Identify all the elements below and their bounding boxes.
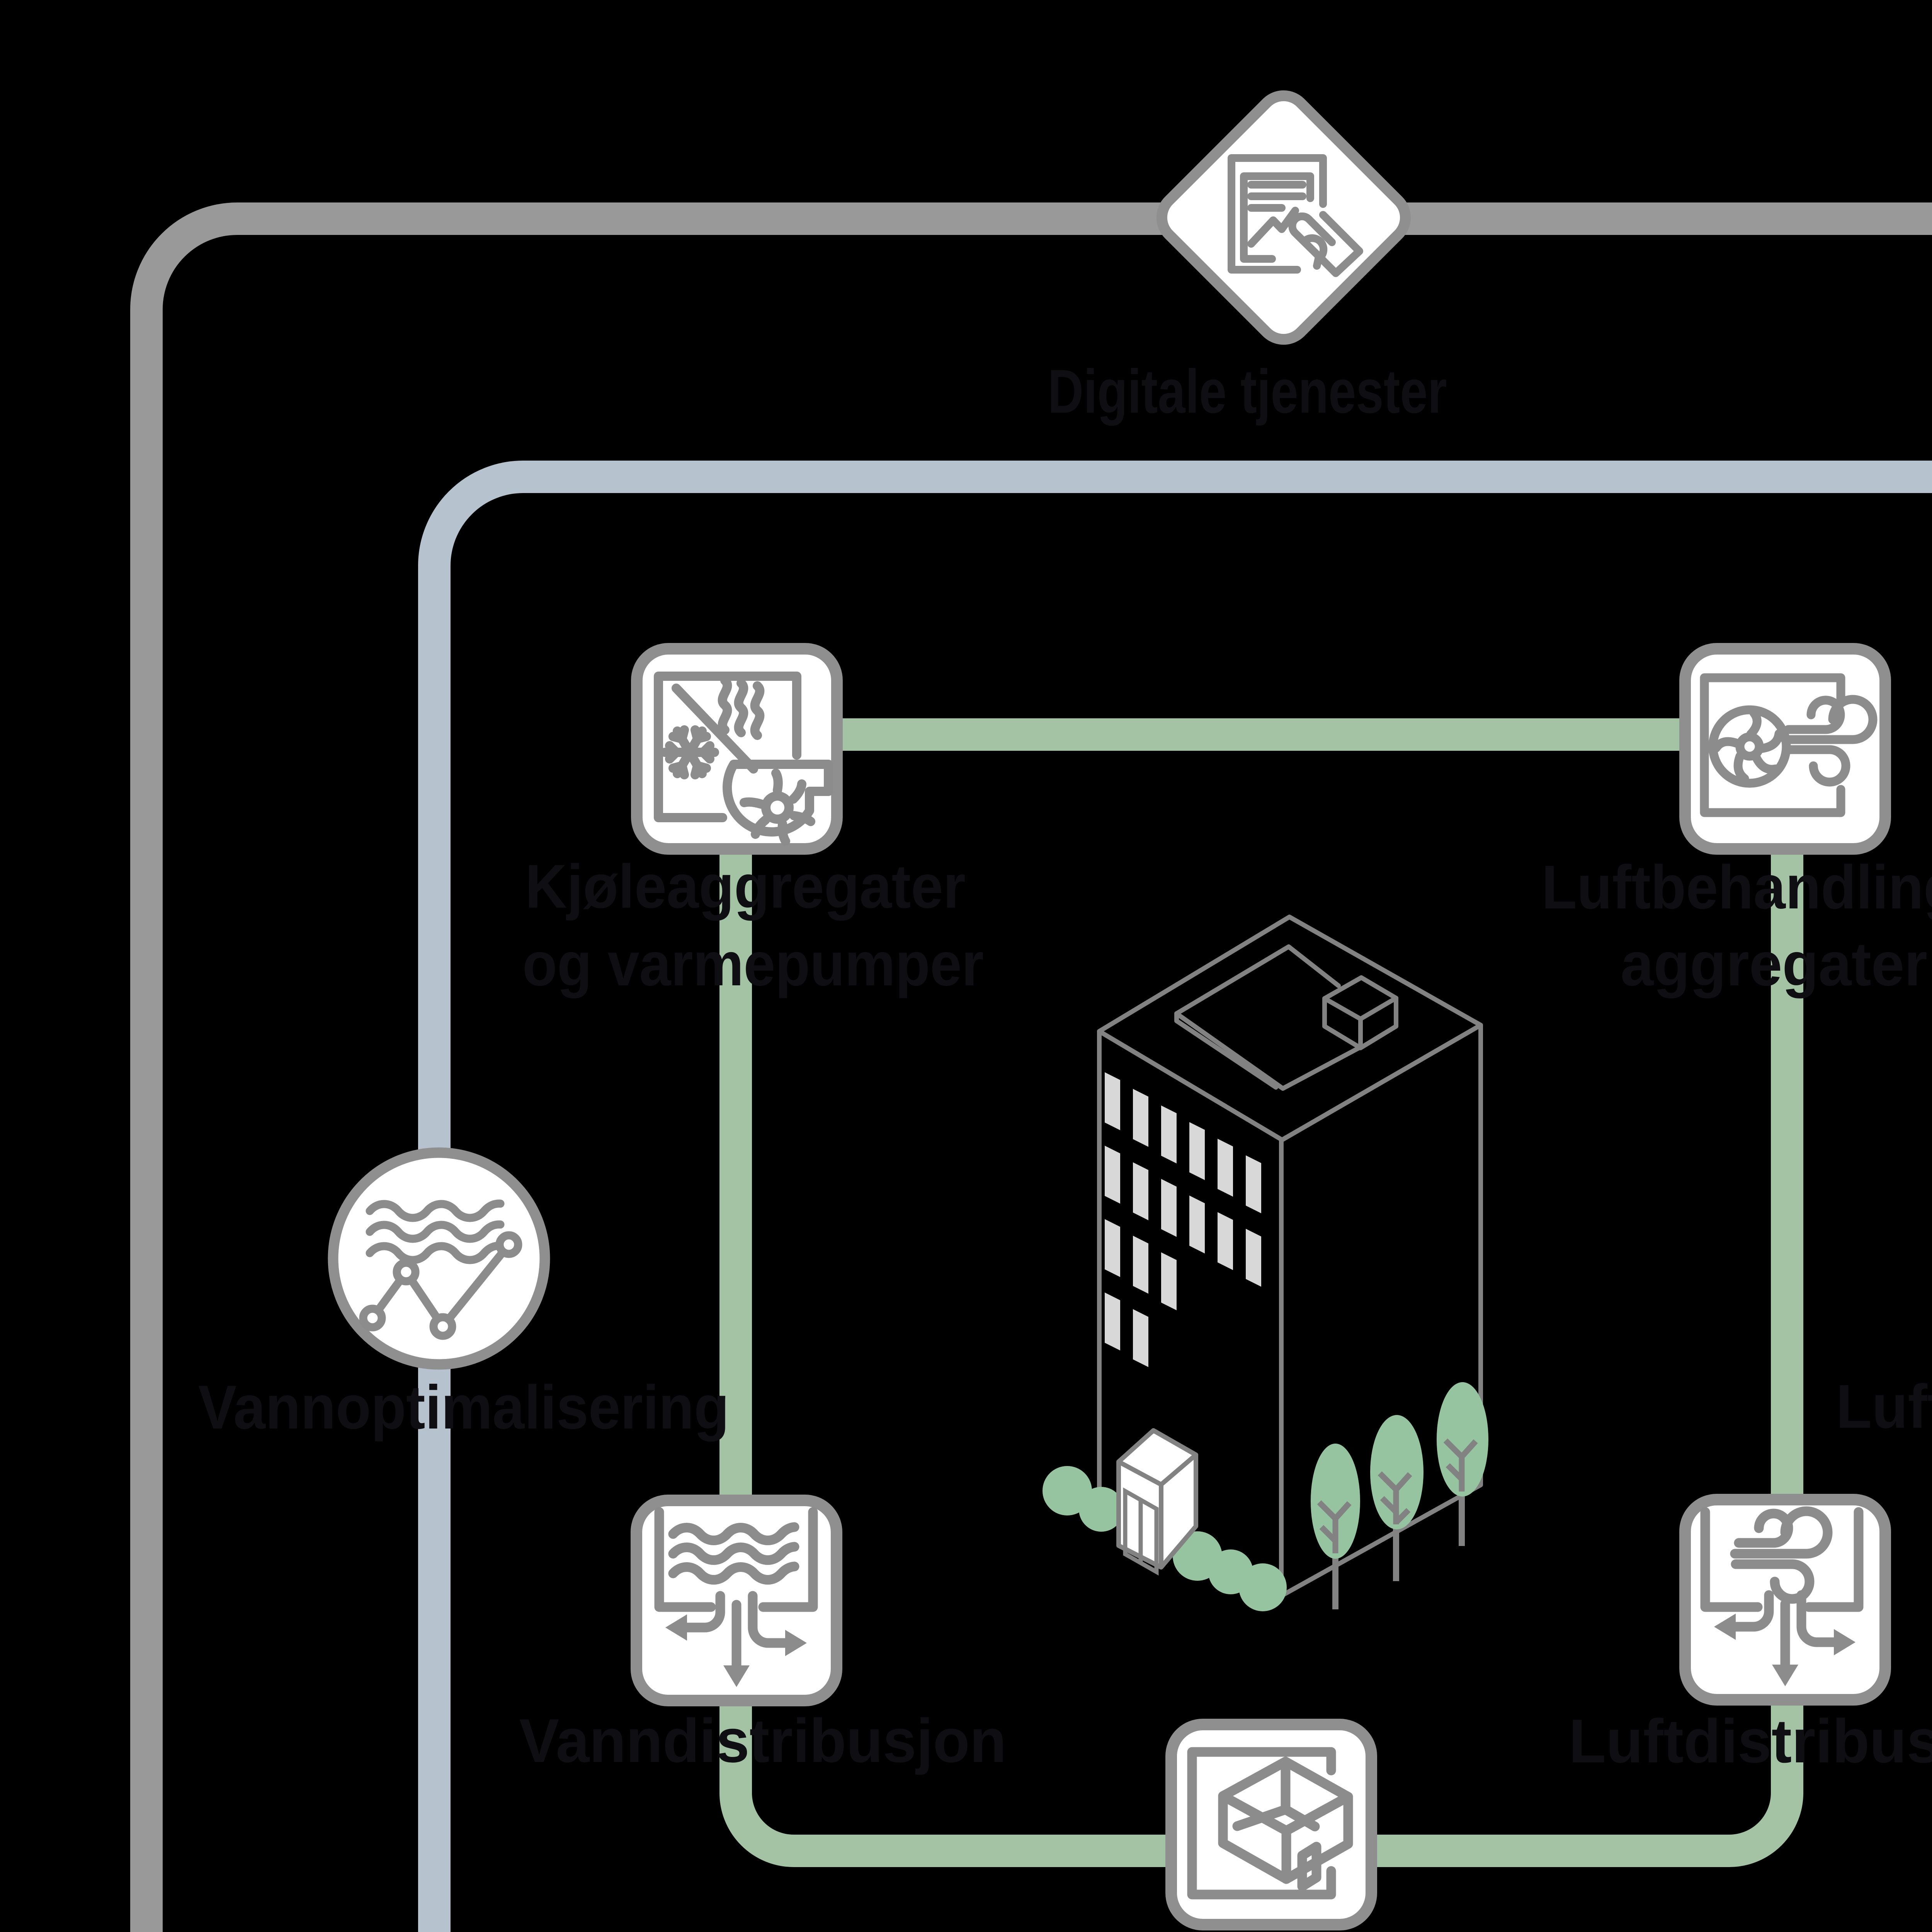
svg-text:Vanndistribusjon: Vanndistribusjon — [519, 1706, 1007, 1775]
svg-text:Romprodukter: Romprodukter — [1077, 1923, 1406, 1932]
svg-text:Digitale tjenester: Digitale tjenester — [1048, 357, 1447, 426]
svg-text:og varmepumper: og varmepumper — [522, 929, 984, 998]
svg-text:Luftdistribusjon: Luftdistribusjon — [1569, 1706, 1932, 1776]
svg-text:Kjøleaggregater: Kjøleaggregater — [525, 852, 966, 921]
svg-text:aggregater: aggregater — [1621, 929, 1927, 998]
svg-text:Vannoptimalisering: Vannoptimalisering — [198, 1372, 729, 1442]
svg-text:Luftbehandlings-: Luftbehandlings- — [1542, 852, 1932, 922]
svg-text:Luftoptimalisering: Luftoptimalisering — [1836, 1372, 1932, 1441]
